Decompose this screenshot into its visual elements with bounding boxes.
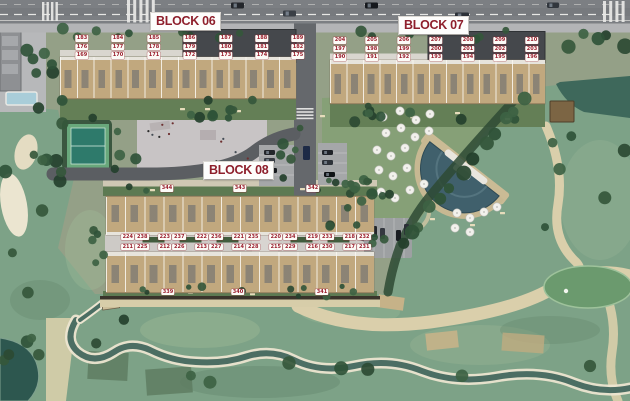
block08-title-text: BLOCK 08 bbox=[209, 163, 268, 177]
sunbed-icon bbox=[320, 115, 325, 117]
parasol-pole bbox=[376, 149, 378, 151]
car-icon bbox=[231, 3, 244, 9]
roof-details bbox=[2, 36, 18, 74]
car-windshield bbox=[326, 173, 329, 176]
parasol-pole bbox=[496, 206, 498, 208]
parasol-pole bbox=[378, 169, 380, 171]
site-plan: 1831841851861871881891761771781791801811… bbox=[0, 0, 630, 401]
sunbed-icon bbox=[180, 108, 185, 110]
parasol-pole bbox=[469, 231, 471, 233]
car-icon bbox=[365, 3, 378, 9]
parasol-pole bbox=[454, 227, 456, 229]
block08-south-houses bbox=[106, 252, 374, 293]
parasol-pole bbox=[456, 212, 458, 214]
parasol-pole bbox=[399, 110, 401, 112]
fountain bbox=[564, 289, 568, 293]
parasol-pole bbox=[380, 191, 382, 193]
sunbed-icon bbox=[205, 108, 210, 110]
car-windshield bbox=[266, 151, 269, 154]
car-icon bbox=[547, 3, 559, 9]
car-icon bbox=[264, 150, 275, 155]
person-dot bbox=[147, 130, 149, 132]
car-windshield bbox=[324, 151, 327, 154]
wall-path bbox=[100, 300, 380, 308]
golf-hut bbox=[550, 101, 574, 122]
parasol-pole bbox=[483, 211, 485, 213]
sunbed-icon bbox=[500, 212, 505, 214]
sunbed-icon bbox=[300, 188, 305, 190]
sunbed-icon bbox=[455, 112, 460, 114]
sunbed-icon bbox=[365, 110, 370, 112]
block08-title: BLOCK 08 bbox=[204, 162, 273, 179]
flat-roof-block07 bbox=[428, 32, 545, 63]
parasol-pole bbox=[390, 155, 392, 157]
person-dot bbox=[168, 133, 170, 135]
car-windshield bbox=[234, 4, 237, 8]
car-icon bbox=[322, 150, 333, 155]
person-dot bbox=[235, 151, 237, 153]
pond-southeast bbox=[544, 266, 630, 308]
car-windshield bbox=[549, 4, 552, 8]
retaining-wall bbox=[100, 296, 380, 300]
apartment-pool bbox=[6, 92, 37, 105]
parasol-pole bbox=[423, 183, 425, 185]
car-icon bbox=[380, 228, 385, 239]
car-windshield bbox=[286, 12, 289, 16]
walkway-central-opening bbox=[252, 234, 278, 252]
car-icon bbox=[303, 146, 310, 160]
parasol-pole bbox=[400, 127, 402, 129]
car-icon bbox=[404, 224, 409, 235]
car-windshield bbox=[324, 161, 327, 164]
block06-title-text: BLOCK 06 bbox=[156, 14, 215, 28]
parasol-pole bbox=[404, 147, 406, 149]
parasol-pole bbox=[382, 116, 384, 118]
car-icon bbox=[322, 160, 333, 165]
sunbed-icon bbox=[505, 118, 510, 120]
parasol-pole bbox=[385, 132, 387, 134]
person-dot bbox=[247, 157, 249, 159]
parasol-pole bbox=[394, 197, 396, 199]
parasol-pole bbox=[392, 175, 394, 177]
person-dot bbox=[220, 141, 222, 143]
parasol-pole bbox=[414, 136, 416, 138]
block06-houses bbox=[60, 57, 296, 99]
car-windshield bbox=[368, 4, 371, 8]
sunbed-icon bbox=[430, 218, 435, 220]
parasol-pole bbox=[406, 167, 408, 169]
block07-houses bbox=[330, 60, 545, 104]
sunbed-icon bbox=[150, 189, 155, 191]
block06-title: BLOCK 06 bbox=[151, 13, 220, 30]
car-icon bbox=[324, 172, 335, 177]
parasol-pole bbox=[409, 189, 411, 191]
person-dot bbox=[151, 134, 153, 136]
car-icon bbox=[396, 230, 401, 241]
play-equipment bbox=[200, 130, 216, 140]
block07-title: BLOCK 07 bbox=[399, 17, 468, 34]
sunbed-icon bbox=[470, 224, 475, 226]
person-dot bbox=[172, 122, 174, 124]
parasol-pole bbox=[415, 119, 417, 121]
sunbed-icon bbox=[250, 293, 255, 295]
person-dot bbox=[161, 124, 163, 126]
person-dot bbox=[222, 138, 224, 140]
block07-title-text: BLOCK 07 bbox=[404, 18, 463, 32]
block08-north-houses bbox=[106, 196, 374, 235]
sunbed-icon bbox=[236, 110, 241, 112]
block06-garden bbox=[60, 96, 296, 120]
parasol-pole bbox=[469, 217, 471, 219]
block08-north-garden bbox=[103, 187, 377, 197]
car-icon bbox=[283, 11, 296, 17]
block08-walkway bbox=[105, 234, 375, 252]
person-dot bbox=[158, 136, 160, 138]
parasol-pole bbox=[428, 130, 430, 132]
parasol-pole bbox=[429, 113, 431, 115]
